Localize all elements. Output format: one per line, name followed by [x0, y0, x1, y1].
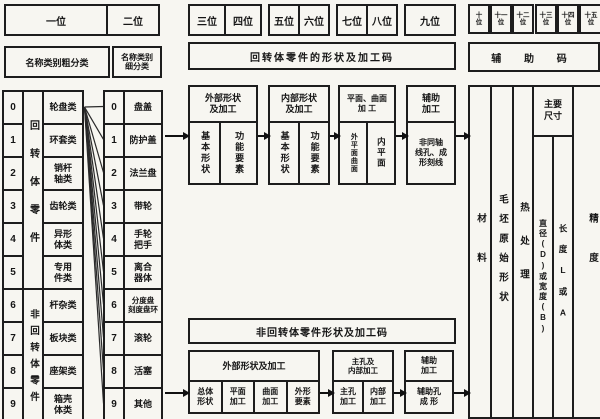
bit-label-12: 十二 位: [512, 4, 534, 34]
bit-label-13: 十三 位: [535, 4, 557, 34]
bit-label-14: 十四 位: [557, 4, 579, 34]
coarse-classification-header: 名称类别粗分类: [4, 46, 110, 78]
external-shape-title: 外部形状 及加工: [190, 87, 256, 123]
arrow-nr-auxiliary-to-auxcode: [454, 392, 466, 394]
precision-column: 精度: [572, 85, 600, 419]
group2-subcategory-cell: 活塞: [123, 354, 163, 389]
group1-digit-cell: 8: [2, 354, 24, 389]
blank-shape-column: 毛坯原始形状: [490, 85, 514, 419]
bit-label-5: 五位: [270, 6, 298, 34]
non-coaxial-holes-cell: 非同轴 线孔、成 形刻线: [408, 123, 454, 183]
diameter-label: 直径(D)或宽度(B): [538, 219, 549, 335]
curved-machining-cell: 曲面 加工: [253, 382, 286, 412]
nr-external-shape-title: 外部形状及加工: [190, 352, 318, 382]
blank-shape-label: 毛坯原始形状: [495, 194, 509, 311]
group2-subcategory-cell: 带轮: [123, 189, 163, 224]
group2-digit-cell: 0: [103, 90, 125, 125]
inner-plane-label: 内平面: [376, 137, 387, 169]
heat-treatment-column: 热处理: [512, 85, 534, 419]
group1-category-cell: 箱壳 体类: [42, 387, 84, 419]
group1-category-cell: 专用 件类: [42, 255, 84, 290]
group2-subcategory-cell: 离合 器体: [123, 255, 163, 290]
surface-machining-title: 平面、曲面 加 工: [340, 87, 394, 123]
group1-digit-cell: 2: [2, 156, 24, 191]
group1-digit-cell: 1: [2, 123, 24, 158]
group1-category-cell: 轮盘类: [42, 90, 84, 125]
bit-label-7: 七位: [338, 6, 366, 34]
material-column: 材料: [468, 85, 492, 419]
bit-label-4: 四位: [224, 6, 260, 34]
group2-subcategory-cell: 盘盖: [123, 90, 163, 125]
group2-subcategory-cell: 其他: [123, 387, 163, 419]
group1-category-cell: 杆杂类: [42, 288, 84, 323]
function-elements-cell-2: 功能要素: [298, 123, 328, 183]
precision-label: 精度: [585, 213, 599, 292]
group2-subcategory-cell: 手轮 把手: [123, 222, 163, 257]
arrow-surface-to-auxiliary: [396, 135, 404, 137]
nr-auxiliary-title: 辅助 加工: [406, 352, 452, 382]
group2-digit-cell: 7: [103, 321, 125, 356]
main-hole-internal-title: 主孔及 内部加工: [334, 352, 392, 382]
arrow-fine-to-external: [165, 135, 185, 137]
bit-box-1-2: 一位 二位: [4, 4, 160, 36]
auxiliary-machining-box: 辅助 加工 非同轴 线孔、成 形刻线: [406, 85, 456, 185]
function-elements-label-2: 功能要素: [308, 131, 319, 175]
group1-category-cell: 异形 体类: [42, 222, 84, 257]
bit-label-11: 十一 位: [490, 4, 512, 34]
main-dimensions-label: 主要 尺寸: [534, 87, 572, 137]
group1-digit-cell: 6: [2, 288, 24, 323]
group2-subcategory-cell: 防护盖: [123, 123, 163, 158]
group2-digit-cell: 9: [103, 387, 125, 419]
external-shape-machining-box: 外部形状 及加工 基本形状 功能要素: [188, 85, 258, 185]
group2-digit-cell: 3: [103, 189, 125, 224]
basic-shape-cell: 基本形状: [190, 123, 219, 183]
group1-category-cell: 座架类: [42, 354, 84, 389]
rotational-group-label: 回转体零件: [22, 90, 44, 290]
rotational-group-label-text: 回转体零件: [26, 120, 41, 260]
outer-surface-cell: 外平面曲面: [340, 123, 366, 183]
outer-form-elements-cell: 外形 要素: [286, 382, 319, 412]
group1-digit-cell: 9: [2, 387, 24, 419]
arrow-mainhole-to-nr-auxiliary: [394, 392, 402, 394]
part-classification-coding-diagram: 一位 二位 三位 四位 五位 六位 七位 八位 九位 十 位十一 位十二 位十三…: [0, 0, 600, 419]
auxiliary-code-section: 材料 毛坯原始形状 热处理 主要 尺寸 直径(D)或宽度(B) 长度L或A 精度: [468, 85, 600, 419]
bit-label-6: 六位: [298, 6, 328, 34]
group1-digit-cell: 5: [2, 255, 24, 290]
length-label: 长度L或A: [557, 224, 569, 330]
non-rotational-group-label: 非回转体零件: [22, 288, 44, 419]
heat-treatment-label: 热处理: [516, 202, 530, 303]
nr-auxiliary-box: 辅助 加工 辅助孔 成 形: [404, 350, 454, 414]
group2-subcategory-cell: 法兰盘: [123, 156, 163, 191]
group2-subcategory-cell: 分度盘 刻度盘环: [123, 288, 163, 323]
main-hole-cell: 主孔 加工: [334, 382, 362, 412]
arrow-nr-external-to-mainhole: [320, 392, 330, 394]
group1-category-cell: 环套类: [42, 123, 84, 158]
bit-label-8: 八位: [366, 6, 396, 34]
main-hole-internal-box: 主孔及 内部加工 主孔 加工 内部 加工: [332, 350, 394, 414]
basic-shape-label-2: 基本形状: [278, 131, 289, 175]
rotational-code-header: 回转体零件的形状及加工码: [188, 42, 456, 70]
bit-box-7-8: 七位 八位: [336, 4, 398, 36]
group2-digit-cell: 2: [103, 156, 125, 191]
group2-digit-cell: 4: [103, 222, 125, 257]
non-rotational-group-label-text: 非回转体零件: [26, 309, 40, 408]
group1-digit-cell: 7: [2, 321, 24, 356]
auxiliary-code-header: 辅 助 码: [468, 42, 600, 72]
group2-digit-cell: 5: [103, 255, 125, 290]
basic-shape-cell-2: 基本形状: [270, 123, 298, 183]
nr-external-shape-box: 外部形状及加工 总体 形状 平面 加工 曲面 加工 外形 要素: [188, 350, 320, 414]
arrow-external-to-internal: [258, 135, 266, 137]
group1-category-cell: 齿轮类: [42, 189, 84, 224]
surface-machining-box: 平面、曲面 加 工 外平面曲面 内平面: [338, 85, 396, 185]
function-elements-cell: 功能要素: [219, 123, 256, 183]
bit-label-1: 一位: [6, 6, 106, 34]
arrow-auxiliary-to-auxcode: [456, 135, 466, 137]
diameter-column: 直径(D)或宽度(B): [534, 137, 552, 417]
group1-digit-cell: 0: [2, 90, 24, 125]
main-dimensions-box: 主要 尺寸 直径(D)或宽度(B) 长度L或A: [532, 85, 574, 419]
inner-plane-cell: 内平面: [366, 123, 394, 183]
bit-label-3: 三位: [190, 6, 224, 34]
internal-shape-machining-box: 内部形状 及加工 基本形状 功能要素: [268, 85, 330, 185]
material-label: 材料: [473, 213, 487, 292]
bit-box-5-6: 五位 六位: [268, 4, 330, 36]
subdivision-fan-lines: [84, 90, 104, 419]
bit-box-3-4: 三位 四位: [188, 4, 262, 36]
group1-category-cell: 板块类: [42, 321, 84, 356]
bit-label-15: 十五 位: [579, 4, 600, 34]
group2-digit-cell: 8: [103, 354, 125, 389]
group1-digit-cell: 3: [2, 189, 24, 224]
non-rotational-code-header: 非回转体零件形状及加工码: [188, 318, 456, 344]
bit-label-10: 十 位: [468, 4, 490, 34]
overall-shape-cell: 总体 形状: [190, 382, 221, 412]
group1-digit-cell: 4: [2, 222, 24, 257]
length-column: 长度L或A: [552, 137, 572, 417]
internal-shape-title: 内部形状 及加工: [270, 87, 328, 123]
fine-classification-header: 名称类别 细分类: [112, 46, 162, 78]
bit-box-9: 九位: [404, 4, 456, 36]
basic-shape-label: 基本形状: [199, 131, 210, 175]
bit-label-2: 二位: [106, 6, 158, 34]
arrow-internal-to-surface: [330, 135, 336, 137]
function-elements-label: 功能要素: [233, 131, 244, 175]
group2-digit-cell: 1: [103, 123, 125, 158]
plane-machining-cell: 平面 加工: [221, 382, 254, 412]
outer-surface-label: 外平面曲面: [349, 133, 358, 173]
auxiliary-hole-forming-cell: 辅助孔 成 形: [406, 382, 452, 412]
group2-subcategory-cell: 滚轮: [123, 321, 163, 356]
group1-category-cell: 销杆 轴类: [42, 156, 84, 191]
group2-digit-cell: 6: [103, 288, 125, 323]
auxiliary-machining-title: 辅助 加工: [408, 87, 454, 123]
internal-machining-cell: 内部 加工: [362, 382, 392, 412]
arrow-into-nr-external: [165, 392, 185, 394]
